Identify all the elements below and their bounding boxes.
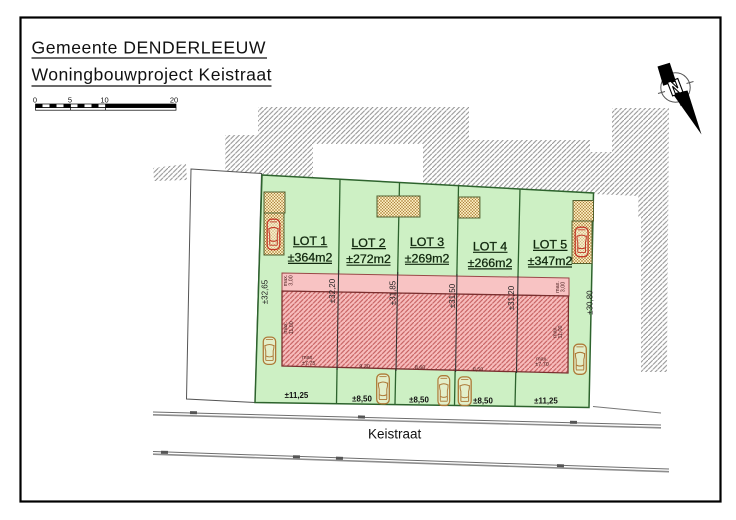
svg-text:±364m2: ±364m2 — [288, 250, 333, 264]
svg-text:Gemeente DENDERLEEUW: Gemeente DENDERLEEUW — [32, 37, 266, 57]
svg-text:0: 0 — [33, 96, 37, 105]
svg-text:±269m2: ±269m2 — [405, 251, 450, 265]
svg-text:±347m2: ±347m2 — [528, 254, 573, 268]
svg-text:±8,50: ±8,50 — [409, 396, 429, 405]
svg-text:±11,25: ±11,25 — [534, 397, 558, 406]
svg-text:8,60: 8,60 — [415, 365, 426, 371]
svg-text:±30,80: ±30,80 — [585, 290, 594, 315]
svg-text:8,50: 8,50 — [473, 367, 484, 373]
svg-text:±266m2: ±266m2 — [468, 256, 513, 270]
svg-text:LOT 1: LOT 1 — [293, 234, 327, 248]
svg-text:Keistraat: Keistraat — [368, 427, 422, 442]
svg-text:±31,50: ±31,50 — [448, 283, 457, 308]
svg-text:±7,70: ±7,70 — [535, 362, 548, 368]
svg-text:5: 5 — [68, 96, 72, 105]
svg-text:±11,25: ±11,25 — [285, 391, 309, 400]
svg-text:Woningbouwproject Keistraat: Woningbouwproject Keistraat — [32, 65, 272, 85]
svg-text:3,00: 3,00 — [288, 275, 294, 286]
svg-text:20: 20 — [170, 96, 178, 105]
svg-text:±31,85: ±31,85 — [389, 280, 398, 305]
svg-text:LOT 4: LOT 4 — [473, 240, 507, 254]
svg-text:LOT 5: LOT 5 — [533, 238, 567, 252]
svg-text:11,00: 11,00 — [289, 321, 295, 334]
svg-text:10: 10 — [100, 96, 108, 105]
svg-text:±32,65: ±32,65 — [260, 279, 269, 304]
svg-text:3,00: 3,00 — [560, 282, 566, 293]
svg-text:9,30: 9,30 — [359, 364, 370, 370]
svg-text:±8,50: ±8,50 — [352, 395, 372, 404]
svg-text:LOT 3: LOT 3 — [410, 235, 444, 249]
svg-text:±7,75: ±7,75 — [302, 361, 315, 367]
svg-text:±31,20: ±31,20 — [507, 285, 516, 310]
svg-text:±8,50: ±8,50 — [473, 397, 493, 406]
svg-text:11,00: 11,00 — [558, 325, 564, 338]
svg-text:±32,20: ±32,20 — [328, 278, 337, 303]
svg-text:LOT 2: LOT 2 — [351, 236, 385, 250]
svg-text:±272m2: ±272m2 — [346, 252, 391, 266]
